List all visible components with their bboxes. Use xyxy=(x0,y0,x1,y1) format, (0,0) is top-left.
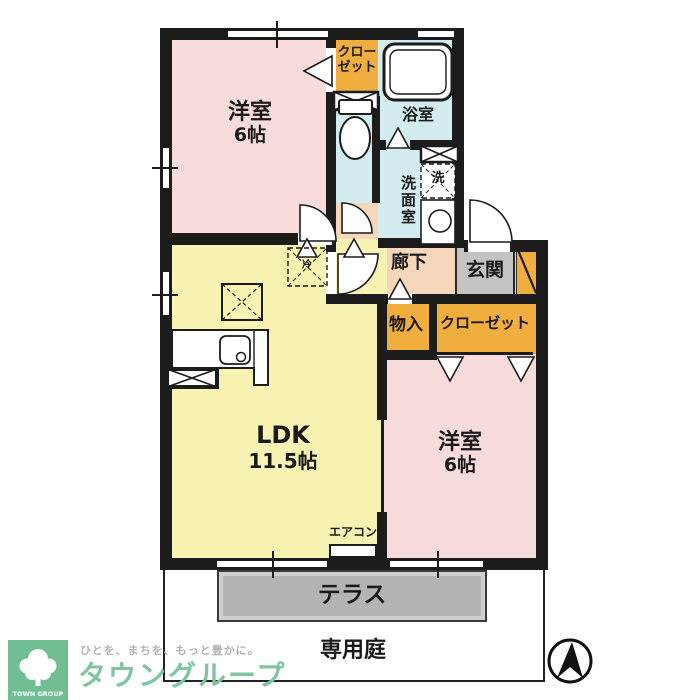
floor-plan-canvas: 洋室 6帖 LDK 11.5帖 洋室 6帖 浴室 洗面室 廊下 玄関 物入 クロ… xyxy=(0,0,700,700)
ldk-door-arc xyxy=(338,254,378,294)
toilet-door-arc xyxy=(342,203,372,233)
tree-icon: TOWN GROUP xyxy=(8,640,68,700)
hallway-label: 廊下 xyxy=(382,253,436,274)
north-arrow-icon xyxy=(549,640,591,682)
wash-basin-icon xyxy=(421,200,455,244)
closet-folding-door-icon xyxy=(508,357,534,381)
aircon-box xyxy=(330,545,376,557)
kitchen-cupboard-symbol xyxy=(167,369,217,387)
bathtub-icon xyxy=(384,44,452,100)
storage-label: 物入 xyxy=(381,316,431,336)
closet-bottom-label: クローゼット xyxy=(437,315,533,332)
toilet-door-icon xyxy=(344,239,364,257)
bedroom-top-door-arc xyxy=(300,205,336,241)
entrance-label: 玄関 xyxy=(456,260,514,282)
room-name: 洋室 xyxy=(200,100,300,125)
washroom-label: 洗面室 xyxy=(392,158,416,242)
closet-top-line2: ゼット xyxy=(334,61,380,76)
terrace-label: テラス xyxy=(302,582,402,608)
bedroom-top-label: 洋室 6帖 xyxy=(200,100,300,147)
town-group-logo: TOWN GROUP xyxy=(8,640,68,700)
room-name: 洋室 xyxy=(410,430,510,455)
room-name: LDK xyxy=(233,422,333,450)
closet-top-folding-door-icon xyxy=(304,56,332,86)
wall-cabinet-symbol xyxy=(222,284,262,320)
entrance-door-arc xyxy=(470,200,512,242)
bath-door-icon xyxy=(387,128,409,148)
ldk-label: LDK 11.5帖 xyxy=(233,422,333,473)
washer-label: 洗 xyxy=(429,172,447,187)
cupboard-symbol xyxy=(421,146,458,162)
entrance-diagonal-line xyxy=(518,250,536,293)
storage-door-icon xyxy=(389,279,411,299)
bath-label: 浴室 xyxy=(380,106,456,124)
fridge-label: 冷 xyxy=(300,260,314,272)
bedroom-bottom-label: 洋室 6帖 xyxy=(410,430,510,477)
room-size: 11.5帖 xyxy=(233,450,333,473)
toilet-icon xyxy=(339,100,372,159)
brand-name: タウングループ xyxy=(78,654,378,694)
closet-folding-door-icon xyxy=(437,357,463,381)
aircon-label: エアコン xyxy=(326,526,380,540)
closet-top-line1: クロー xyxy=(334,46,380,61)
room-size: 6帖 xyxy=(200,125,300,147)
logo-text: TOWN GROUP xyxy=(13,690,64,698)
room-size: 6帖 xyxy=(410,455,510,477)
closet-top-label: クロー ゼット xyxy=(334,46,380,76)
